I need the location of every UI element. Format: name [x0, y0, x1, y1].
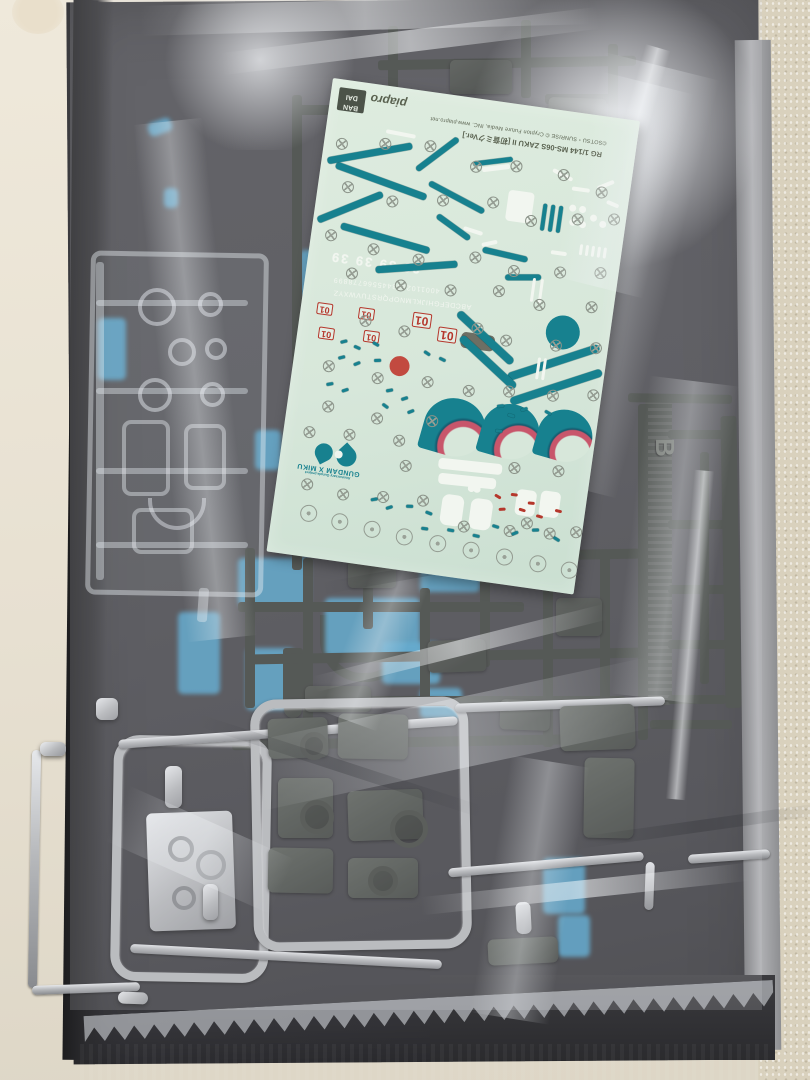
decal-tiny-teal-tick: [421, 527, 428, 531]
bag-wrinkle: [133, 118, 257, 642]
decal-tiny-teal-tick: [472, 534, 479, 538]
decal-tiny-teal-tick: [385, 505, 393, 510]
decal-screw-circle: [469, 160, 483, 174]
decal-tiny-teal-tick: [439, 357, 447, 363]
decal-red-circle: [388, 355, 411, 378]
decal-number-circle: [462, 541, 481, 560]
decal-screw-circle: [585, 300, 599, 314]
decal-tiny-red-tick: [499, 508, 506, 511]
decal-white-mark: [482, 164, 510, 172]
decal-01-marking: 01: [318, 327, 336, 341]
decal-tiny-teal-tick: [423, 350, 430, 356]
decal-white-mark: [481, 240, 497, 247]
bag-wrinkle-highlight: [420, 863, 750, 915]
decal-tiny-teal-tick: [406, 505, 413, 508]
decal-number-circle: [330, 512, 349, 531]
decal-screw-circle: [589, 341, 603, 355]
decal-number-circle: [395, 527, 414, 546]
decal-teal-stripe: [340, 222, 430, 254]
decal-screw-circle: [341, 180, 355, 194]
decal-white-mark: [530, 278, 536, 302]
decal-screw-circle: [486, 196, 500, 210]
decal-teal-stripe: [316, 191, 384, 224]
decal-white-plate: [538, 490, 561, 519]
decal-screw-circle: [416, 494, 430, 508]
decal-screw-circle: [321, 400, 335, 414]
decal-screw-circle: [399, 459, 413, 473]
decal-tiny-red-tick: [494, 493, 502, 499]
decal-tiny-red-tick: [536, 514, 544, 519]
decal-screw-circle: [510, 160, 524, 174]
decal-screw-circle: [386, 195, 400, 209]
decal-number-circle: [428, 534, 447, 553]
decal-screw-circle: [492, 284, 506, 298]
bandai-logo: BAN DAI: [337, 87, 367, 114]
decal-screw-circle: [300, 478, 314, 492]
decal-tiny-teal-tick: [425, 510, 433, 515]
decal-teal-bar: [548, 205, 556, 232]
decal-screw-circle: [359, 314, 373, 328]
decal-screw-circle: [444, 284, 458, 298]
decal-screw-circle: [549, 339, 563, 353]
photo-stage: B BAN DAI piapro ©SOTSU・SUNRISE © Crypto…: [0, 0, 810, 1080]
decal-teal-stripe: [482, 247, 528, 263]
decal-screw-circle: [324, 228, 338, 242]
decal-01-marking: 01: [436, 326, 457, 344]
decal-screw-circle: [421, 375, 435, 389]
decal-teal-stripe: [415, 136, 460, 172]
silver-part: [40, 742, 66, 756]
decal-tiny-teal-tick: [511, 531, 519, 536]
decal-tiny-teal-tick: [492, 524, 500, 529]
gundam-x-miku-emblem: Anniversary Gunpla project GUNDAM X MIKU: [286, 428, 375, 483]
decal-screw-circle: [371, 371, 385, 385]
decal-screw-circle: [398, 325, 412, 339]
decal-tiny-teal-tick: [341, 388, 349, 393]
decal-teal-bar: [540, 204, 548, 231]
decal-screw-circle: [569, 525, 583, 539]
decal-number-circle: [299, 504, 318, 523]
decal-tiny-teal-tick: [338, 355, 346, 360]
decal-screw-circle: [533, 298, 547, 312]
decal-screw-circle: [587, 389, 601, 403]
decal-fan-shield: [475, 397, 546, 466]
decal-tiny-red-tick: [511, 493, 518, 497]
decal-fan-shield: [531, 403, 598, 468]
decal-tiny-teal-tick: [326, 382, 333, 386]
decal-screw-circle: [376, 490, 390, 504]
decal-tiny-teal-tick: [553, 536, 561, 542]
decal-tiny-teal-tick: [386, 388, 393, 392]
decal-tiny-teal-tick: [382, 403, 389, 410]
decal-screw-circle: [524, 214, 538, 228]
decal-01-marking: 01: [363, 330, 381, 344]
decal-tiny-red-tick: [528, 501, 535, 505]
bag-wrinkle: [237, 657, 662, 813]
decal-screw-circle: [322, 359, 336, 373]
decal-tiny-teal-tick: [407, 409, 415, 414]
decal-screw-circle: [469, 251, 483, 265]
decal-screw-circle: [392, 434, 406, 448]
silver-tube: [28, 750, 41, 988]
decal-tiny-teal-tick: [374, 359, 381, 362]
decal-01-marking: 01: [316, 302, 334, 316]
decal-screw-circle: [508, 461, 522, 475]
decal-number-circle: [528, 554, 547, 573]
decal-screw-circle: [436, 194, 450, 208]
decal-crest: [467, 479, 483, 495]
decal-tiny-teal-tick: [401, 396, 409, 401]
decal-screw-circle: [457, 520, 471, 534]
decal-tiny-teal-tick: [532, 528, 539, 531]
decal-screw-circle: [367, 243, 381, 257]
decal-screw-circle: [370, 412, 384, 426]
decal-tiny-teal-tick: [353, 345, 361, 351]
decal-tiny-teal-tick: [340, 339, 348, 344]
decal-tiny-teal-tick: [447, 528, 454, 532]
decal-screw-circle: [499, 334, 513, 348]
decal-screw-circle: [462, 384, 476, 398]
decal-tiny-teal-tick: [353, 361, 361, 366]
decal-white-plate: [468, 497, 494, 531]
decal-number-circle: [495, 547, 514, 566]
decal-01-marking: 01: [411, 311, 432, 329]
decal-tiny-teal-tick: [544, 410, 552, 416]
decal-screw-circle: [336, 488, 350, 502]
decal-number-circle: [362, 520, 381, 539]
decal-screw-circle: [335, 137, 349, 151]
decal-tiny-teal-tick: [371, 497, 378, 501]
decal-screw-circle: [546, 389, 560, 403]
decal-screw-circle: [552, 464, 566, 478]
